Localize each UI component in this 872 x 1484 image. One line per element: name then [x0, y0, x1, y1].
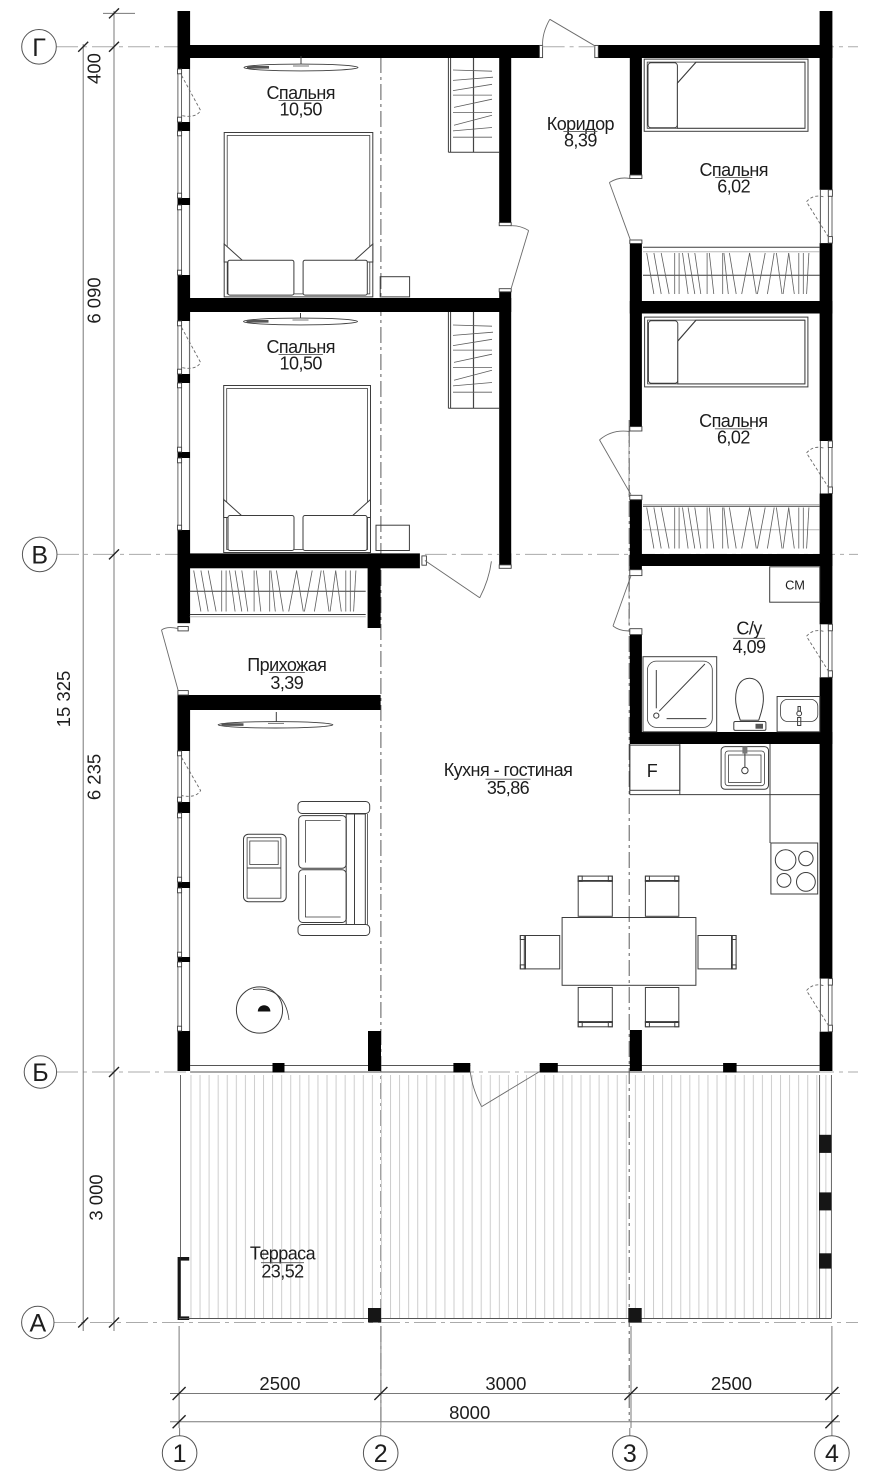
svg-text:Г: Г	[32, 34, 46, 62]
svg-text:СМ: СМ	[785, 578, 805, 593]
svg-text:15 325: 15 325	[53, 671, 74, 728]
svg-text:6,02: 6,02	[717, 176, 750, 196]
svg-text:3 000: 3 000	[86, 1174, 107, 1220]
svg-text:3,39: 3,39	[270, 673, 303, 693]
svg-text:23,52: 23,52	[261, 1262, 304, 1282]
svg-text:6 235: 6 235	[84, 754, 105, 800]
svg-text:4,09: 4,09	[733, 637, 766, 657]
svg-text:400: 400	[84, 53, 105, 84]
svg-text:8000: 8000	[449, 1402, 490, 1423]
svg-text:35,86: 35,86	[487, 778, 530, 798]
svg-text:А: А	[29, 1310, 46, 1338]
svg-text:4: 4	[825, 1440, 839, 1468]
svg-text:Б: Б	[32, 1059, 48, 1087]
svg-text:В: В	[31, 541, 48, 569]
svg-text:10,50: 10,50	[280, 99, 323, 119]
svg-text:2500: 2500	[259, 1373, 300, 1394]
svg-text:1: 1	[173, 1440, 187, 1468]
svg-text:3: 3	[623, 1440, 637, 1468]
svg-text:2: 2	[374, 1440, 388, 1468]
svg-text:Терраса: Терраса	[250, 1244, 317, 1264]
svg-text:10,50: 10,50	[280, 353, 323, 373]
svg-text:6 090: 6 090	[84, 277, 105, 323]
svg-text:F: F	[647, 761, 658, 781]
svg-text:8,39: 8,39	[564, 130, 597, 150]
svg-text:3000: 3000	[485, 1373, 526, 1394]
svg-text:6,02: 6,02	[717, 428, 750, 448]
svg-text:2500: 2500	[711, 1373, 752, 1394]
svg-text:С/у: С/у	[736, 619, 762, 639]
